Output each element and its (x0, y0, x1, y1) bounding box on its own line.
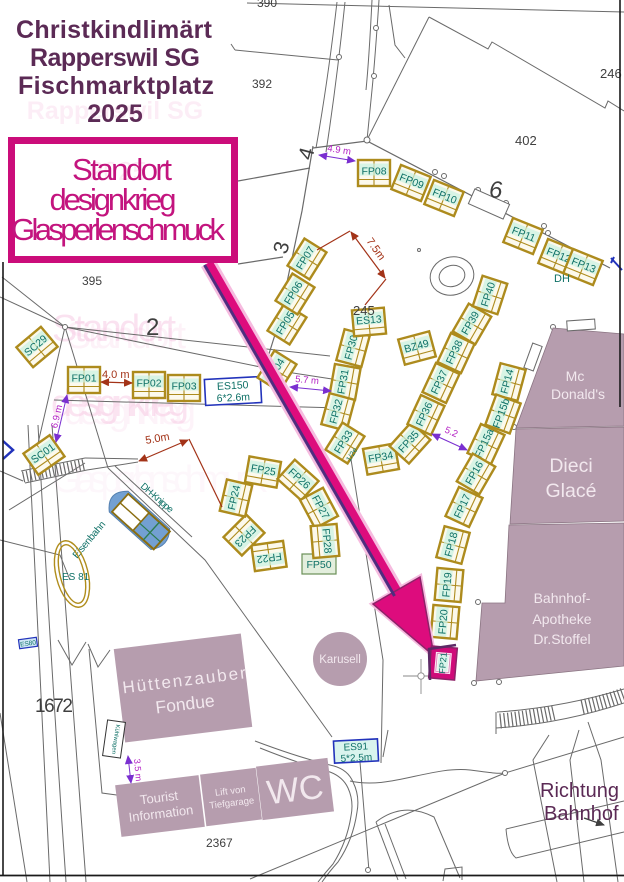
svg-text:392: 392 (252, 77, 272, 91)
svg-text:DH: DH (554, 273, 570, 285)
svg-text:Dr.Stoffel: Dr.Stoffel (533, 631, 590, 647)
svg-text:ES 81: ES 81 (62, 572, 90, 583)
svg-text:Glasperlenschmuck: Glasperlenschmuck (11, 212, 226, 247)
svg-text:2367: 2367 (206, 836, 233, 850)
svg-text:Glacé: Glacé (546, 480, 597, 502)
svg-text:FP20: FP20 (436, 609, 450, 635)
svg-text:245: 245 (353, 303, 375, 318)
svg-text:FP19: FP19 (440, 572, 454, 598)
svg-text:Bahnhof: Bahnhof (544, 803, 619, 825)
svg-text:6*2.6m: 6*2.6m (216, 391, 250, 405)
svg-text:Rapperswil SG: Rapperswil SG (30, 44, 200, 72)
svg-text:Standort: Standort (66, 315, 186, 357)
svg-text:402: 402 (515, 133, 537, 148)
svg-text:1672: 1672 (35, 696, 73, 717)
svg-text:FP03: FP03 (171, 381, 196, 393)
svg-text:WC: WC (265, 768, 326, 813)
svg-text:5.7 m: 5.7 m (295, 374, 320, 387)
svg-text:Dieci: Dieci (549, 455, 592, 477)
svg-text:2: 2 (146, 314, 159, 341)
svg-text:Rapperswil SG: Rapperswil SG (27, 97, 203, 125)
svg-text:6: 6 (489, 177, 503, 204)
svg-text:Richtung: Richtung (540, 780, 619, 802)
svg-text:Christkindlimärt: Christkindlimärt (16, 16, 213, 44)
svg-text:390: 390 (257, 0, 277, 10)
svg-text:FP21: FP21 (437, 652, 449, 674)
svg-text:FP01: FP01 (71, 373, 96, 385)
svg-text:3.5 m: 3.5 m (132, 758, 144, 781)
svg-text:5*2.5m: 5*2.5m (340, 752, 372, 765)
svg-text:Mc: Mc (566, 368, 585, 384)
svg-text:FP08: FP08 (361, 166, 386, 178)
svg-text:4.0 m: 4.0 m (102, 369, 130, 381)
svg-text:Karusell: Karusell (319, 654, 361, 666)
svg-text:FP02: FP02 (136, 378, 161, 390)
svg-text:395: 395 (82, 274, 102, 288)
svg-text:Donald's: Donald's (551, 386, 605, 402)
svg-text:Bahnhof-: Bahnhof- (534, 590, 591, 606)
svg-text:246: 246 (600, 66, 622, 81)
svg-text:Fischmarktplatz: Fischmarktplatz (18, 72, 214, 100)
svg-text:Apotheke: Apotheke (532, 611, 591, 627)
svg-text:FP28: FP28 (319, 528, 333, 554)
svg-text:FP50: FP50 (306, 559, 331, 571)
